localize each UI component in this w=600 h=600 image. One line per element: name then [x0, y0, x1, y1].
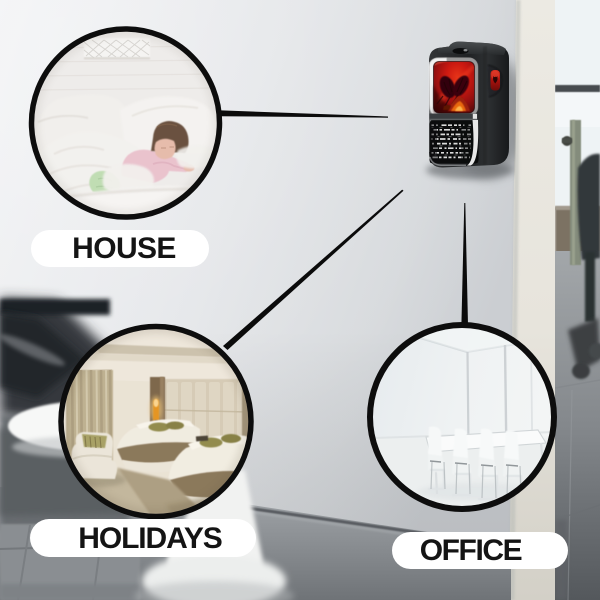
svg-text:HOLIDAYS: HOLIDAYS: [78, 522, 222, 555]
svg-text:OFFICE: OFFICE: [420, 534, 522, 567]
svg-text:HOUSE: HOUSE: [72, 232, 176, 265]
